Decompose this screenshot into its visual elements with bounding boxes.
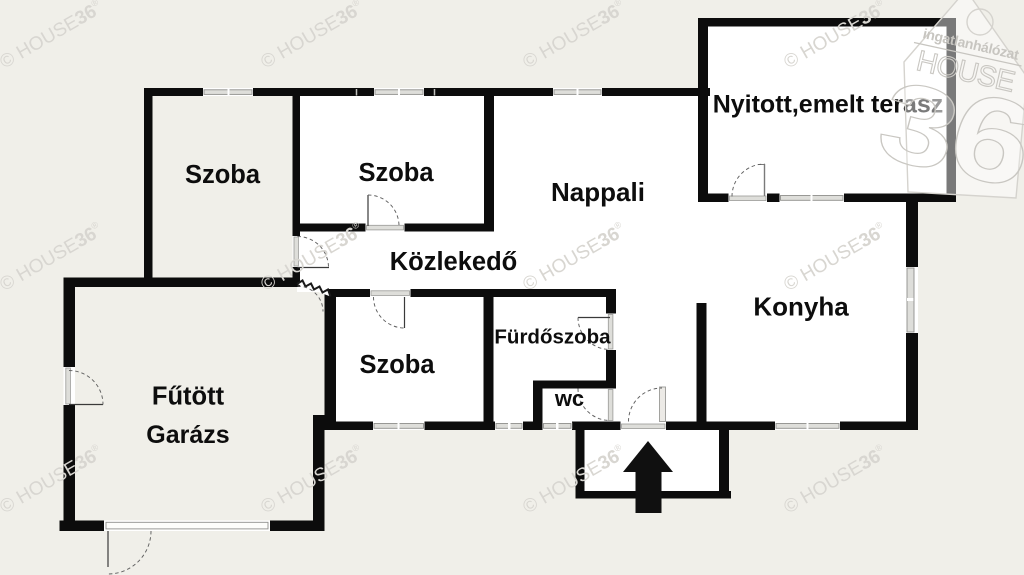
svg-text:Garázs: Garázs <box>146 421 229 449</box>
svg-text:Szoba: Szoba <box>358 159 434 187</box>
svg-text:Közlekedő: Közlekedő <box>390 248 518 276</box>
svg-text:wc: wc <box>554 386 584 411</box>
svg-text:Fürdőszoba: Fürdőszoba <box>494 326 611 349</box>
svg-text:Fűtött: Fűtött <box>152 383 225 411</box>
svg-text:Szoba: Szoba <box>359 351 435 379</box>
svg-text:Konyha: Konyha <box>753 292 849 322</box>
svg-text:Szoba: Szoba <box>185 161 261 189</box>
svg-text:Nappali: Nappali <box>551 177 645 207</box>
